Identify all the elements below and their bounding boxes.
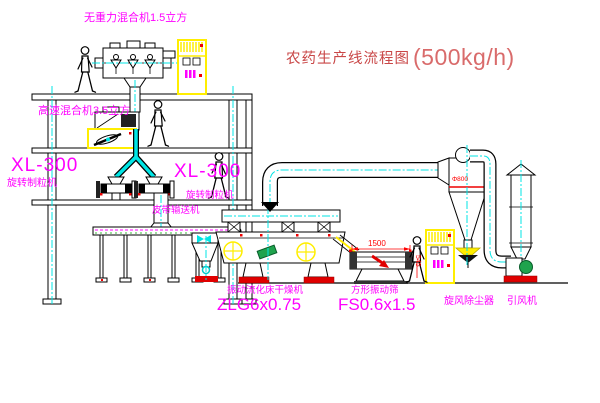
- label-gravity-mixer: 无重力混合机1.5立方: [84, 13, 187, 24]
- label-granulator-model-right: XL-300: [174, 162, 241, 181]
- label-granulator-right: 旋转制粒机: [186, 191, 234, 201]
- diagram-title: 农药生产线流程图 (500kg/h): [286, 44, 515, 71]
- title-text: 农药生产线流程图: [286, 47, 410, 68]
- title-capacity: (500kg/h): [413, 44, 515, 71]
- dimension-screen-height: 545: [414, 255, 421, 267]
- label-screen-model: FS0.6x1.5: [338, 296, 416, 313]
- label-granulator-model-left: XL-300: [11, 156, 78, 175]
- cad-flow-diagram: 农药生产线流程图 (500kg/h) 无重力混合机1.5立方 高速混合机3.5立…: [0, 0, 600, 403]
- zero-gravity-mixer-drawing: [92, 41, 178, 115]
- worker-figure: [75, 47, 96, 92]
- dimension-cyclone: Φ800: [452, 177, 468, 184]
- worker-figure: [148, 101, 169, 147]
- dimension-screen-length: 1500: [368, 240, 386, 248]
- label-dryer-model: ZLG6x0.75: [217, 296, 301, 313]
- rotary-granulator-left-drawing: [96, 177, 136, 200]
- label-high-speed-mixer: 高速混合机3.5立方: [38, 106, 130, 117]
- control-cabinet-icon: [426, 230, 454, 283]
- control-cabinet-icon: [178, 40, 206, 94]
- label-belt-conveyor: 皮带输送机: [152, 206, 200, 216]
- exhaust-duct-drawing: [261, 170, 438, 212]
- label-granulator-left: 旋转制粒机: [7, 179, 57, 189]
- label-fan: 引风机: [507, 297, 537, 307]
- induced-draft-fan-drawing: [504, 258, 537, 282]
- label-cyclone: 旋风除尘器: [444, 297, 494, 307]
